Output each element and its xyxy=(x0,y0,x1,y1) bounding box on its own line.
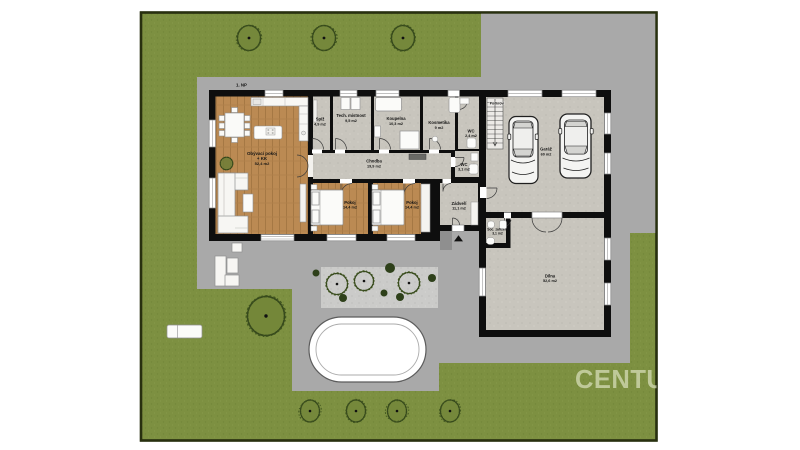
svg-text:Zádveří: Zádveří xyxy=(452,201,468,206)
svg-text:Pokoj: Pokoj xyxy=(344,200,355,205)
svg-text:3,1 m2: 3,1 m2 xyxy=(458,168,470,172)
svg-text:WC: WC xyxy=(468,129,475,134)
svg-text:60 m2: 60 m2 xyxy=(541,153,552,157)
svg-text:Podkroví: Podkroví xyxy=(490,102,506,106)
svg-text:9 m2: 9 m2 xyxy=(435,126,444,130)
svg-text:Dílna: Dílna xyxy=(545,274,556,279)
svg-text:WC: WC xyxy=(461,162,468,167)
svg-text:52,6 m2: 52,6 m2 xyxy=(543,279,557,283)
svg-text:Tech. místnost: Tech. místnost xyxy=(336,113,366,118)
svg-text:Spíž: Spíž xyxy=(316,117,325,122)
svg-text:19,9 m2: 19,9 m2 xyxy=(367,165,381,169)
svg-text:Kosmetika: Kosmetika xyxy=(428,120,450,125)
svg-text:CENTU: CENTU xyxy=(575,366,665,394)
svg-text:10,3 m2: 10,3 m2 xyxy=(389,122,403,126)
svg-text:4,9 m2: 4,9 m2 xyxy=(314,122,326,126)
svg-text:Chodba: Chodba xyxy=(366,159,382,164)
svg-text:1. NP: 1. NP xyxy=(236,83,247,88)
svg-text:Pokoj: Pokoj xyxy=(406,200,417,205)
svg-text:14,4 m2: 14,4 m2 xyxy=(343,205,357,209)
svg-text:14,4 m2: 14,4 m2 xyxy=(405,205,419,209)
svg-text:11,1 m2: 11,1 m2 xyxy=(452,207,466,211)
svg-text:Koupelna: Koupelna xyxy=(386,116,406,121)
svg-text:Garáž: Garáž xyxy=(540,147,552,152)
svg-text:52,4 m2: 52,4 m2 xyxy=(255,161,270,166)
svg-text:3,1 m2: 3,1 m2 xyxy=(492,232,503,236)
svg-text:9,5 m2: 9,5 m2 xyxy=(345,119,357,123)
svg-text:2,4 m2: 2,4 m2 xyxy=(465,134,477,138)
